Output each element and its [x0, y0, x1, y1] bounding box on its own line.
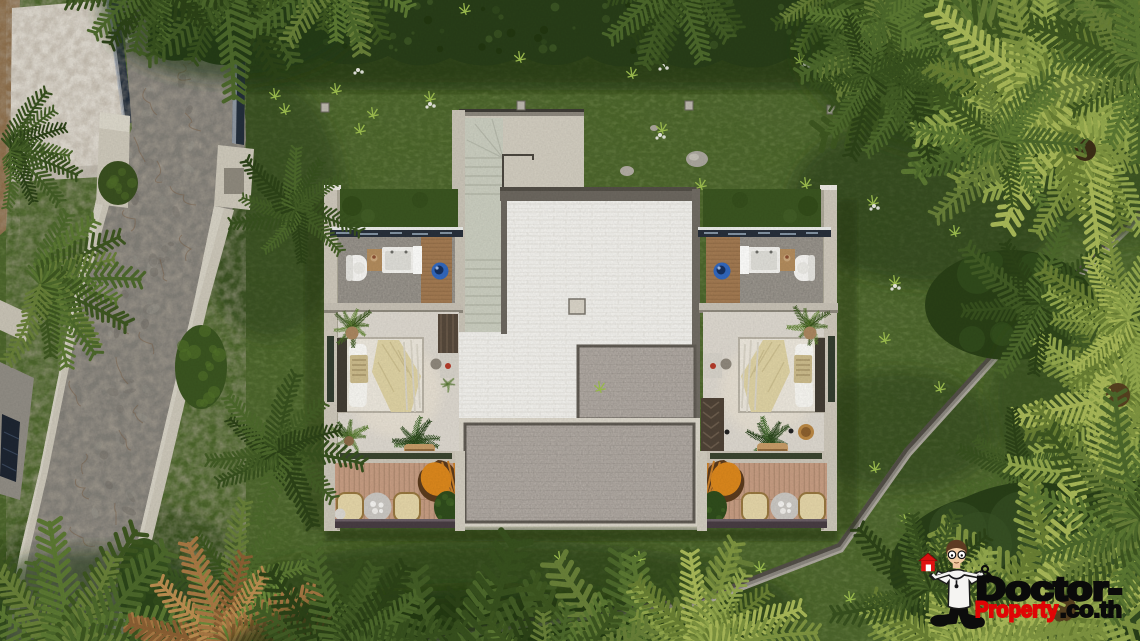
svg-text:Property: Property	[975, 597, 1059, 622]
svg-text:.co.th: .co.th	[1060, 597, 1122, 622]
